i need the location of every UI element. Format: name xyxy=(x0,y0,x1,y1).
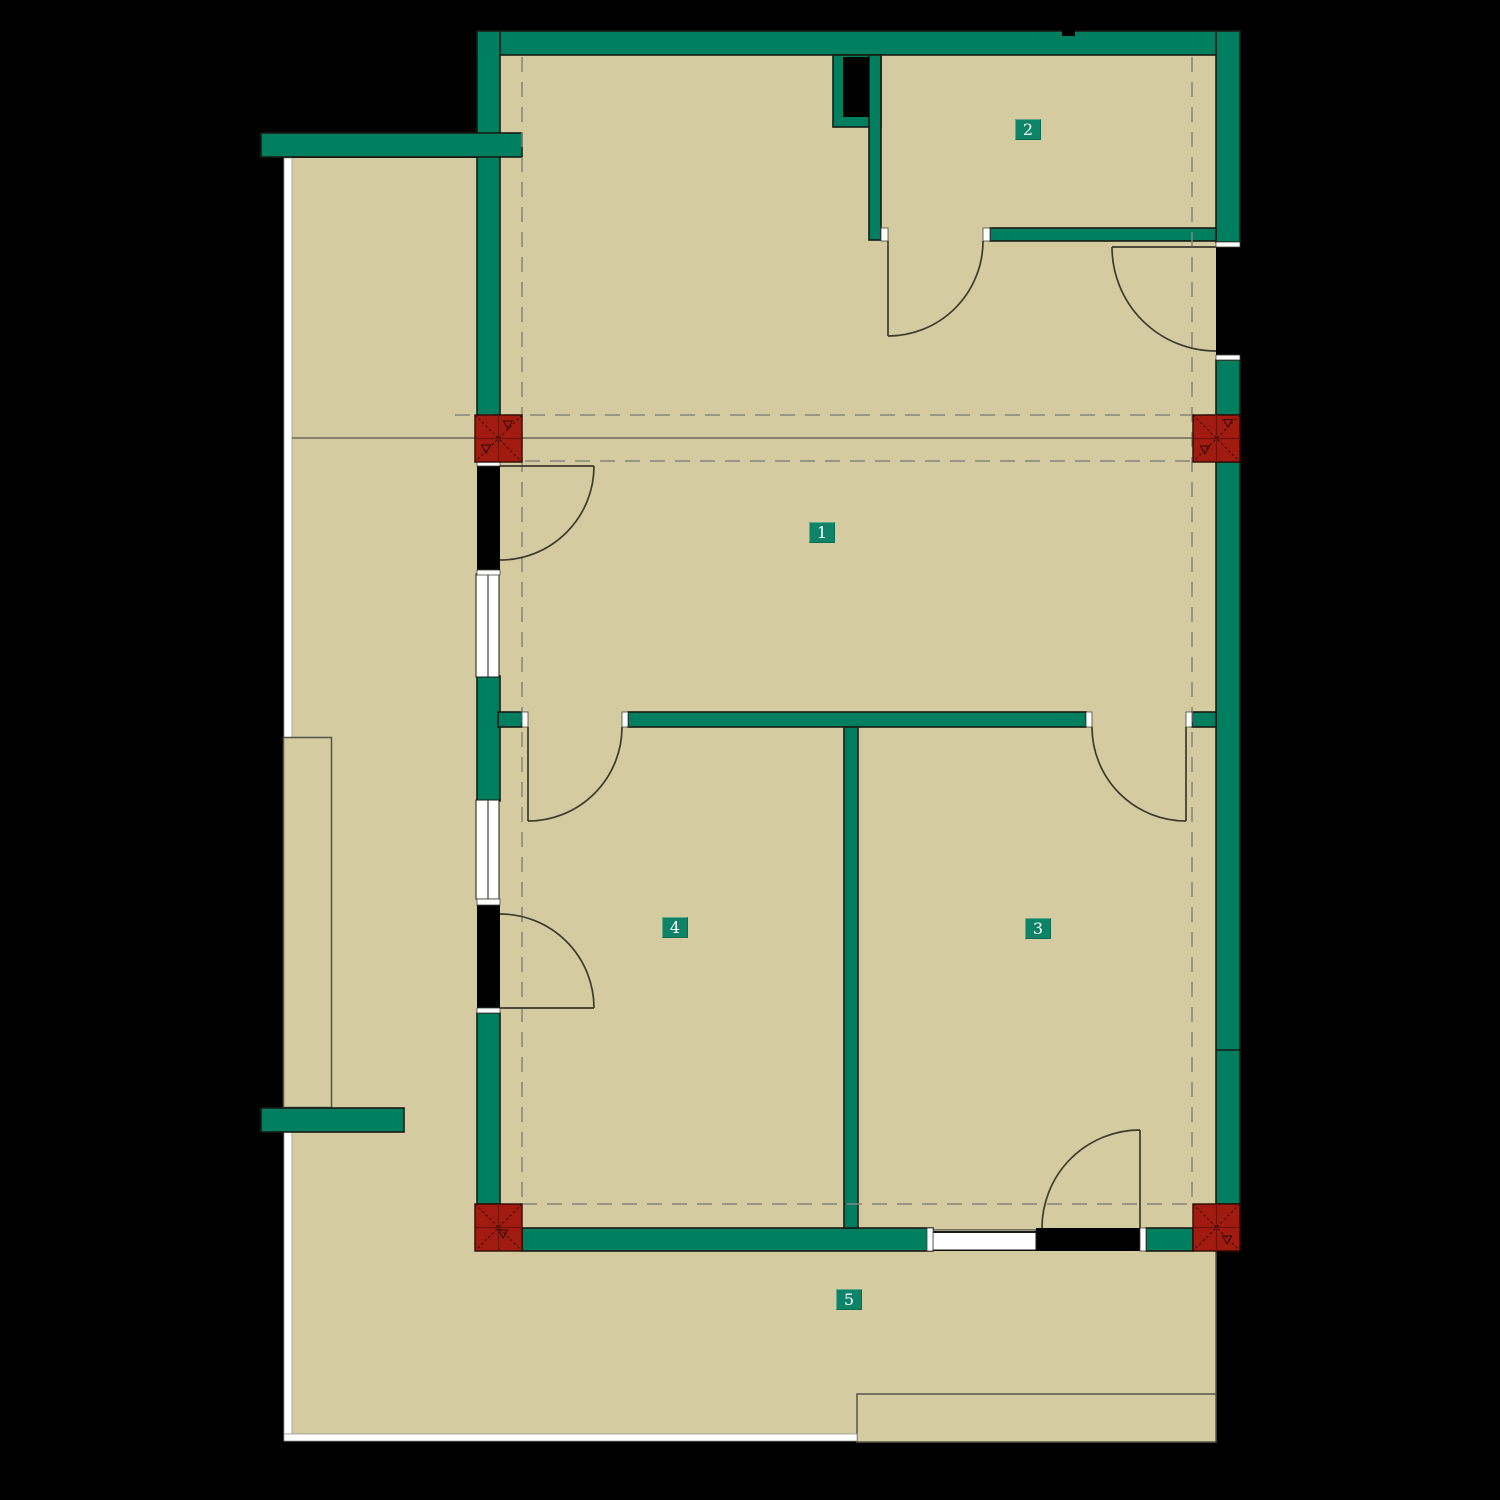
wall-room2-bottom xyxy=(990,228,1216,241)
wall-mid-stub-right xyxy=(1192,712,1216,727)
wall-left-upper xyxy=(477,31,500,415)
wall-bottom-left-segment xyxy=(522,1228,933,1251)
terrace-edge-left-lower xyxy=(284,1132,292,1434)
room-label-2: 2 xyxy=(1015,119,1041,140)
jamb xyxy=(1216,355,1240,360)
jamb xyxy=(477,570,500,575)
jamb xyxy=(1140,1228,1146,1251)
yard-recess xyxy=(284,738,332,1108)
wall-yard-stub-top xyxy=(261,133,522,157)
door-fill-bottom xyxy=(1036,1228,1140,1251)
shaft-void xyxy=(843,57,869,117)
wall-yard-stub-bottom xyxy=(261,1108,404,1132)
wall-left-lower xyxy=(477,1013,500,1204)
wall-left-middle xyxy=(477,676,500,801)
room-label-4: 4 xyxy=(662,917,688,938)
wall-room2-left xyxy=(869,55,881,240)
wall-mid-main xyxy=(628,712,1086,727)
terrace-step xyxy=(857,1394,1216,1442)
room-label-5: 5 xyxy=(836,1289,862,1310)
column-top-left xyxy=(475,415,522,462)
wall-right-mid xyxy=(1216,360,1240,415)
jamb xyxy=(622,712,628,727)
wall-bottom-right-segment xyxy=(1146,1228,1193,1251)
jamb xyxy=(1086,712,1092,727)
jamb xyxy=(983,228,990,241)
wall-right-lower xyxy=(1216,462,1240,1204)
terrace-edge-left-upper xyxy=(284,158,292,738)
jamb xyxy=(1216,242,1240,247)
room-label-3: 3 xyxy=(1025,918,1051,939)
column-bottom-left xyxy=(475,1204,522,1251)
jamb xyxy=(881,228,888,241)
floor-plan-drawing xyxy=(0,0,1500,1500)
terrace-edge-bottom xyxy=(284,1434,857,1441)
jamb xyxy=(1186,712,1192,727)
door-fill-left-lower xyxy=(477,905,500,1008)
jamb xyxy=(522,712,528,727)
jamb xyxy=(927,1228,933,1251)
room-label-1: 1 xyxy=(809,522,835,543)
column-bottom-right xyxy=(1193,1204,1240,1251)
wall-mid-stub-left xyxy=(498,712,522,727)
door-fill-left-upper xyxy=(477,466,500,570)
floor-plan-canvas: 1 2 3 4 5 xyxy=(0,0,1500,1500)
wall-joint-top xyxy=(1062,29,1075,36)
jamb xyxy=(477,899,500,905)
column-top-right xyxy=(1193,415,1240,462)
jamb xyxy=(477,1008,500,1013)
wall-room3-room4-divider xyxy=(844,727,858,1228)
wall-top xyxy=(477,31,1240,55)
wall-right-upper xyxy=(1216,31,1240,242)
